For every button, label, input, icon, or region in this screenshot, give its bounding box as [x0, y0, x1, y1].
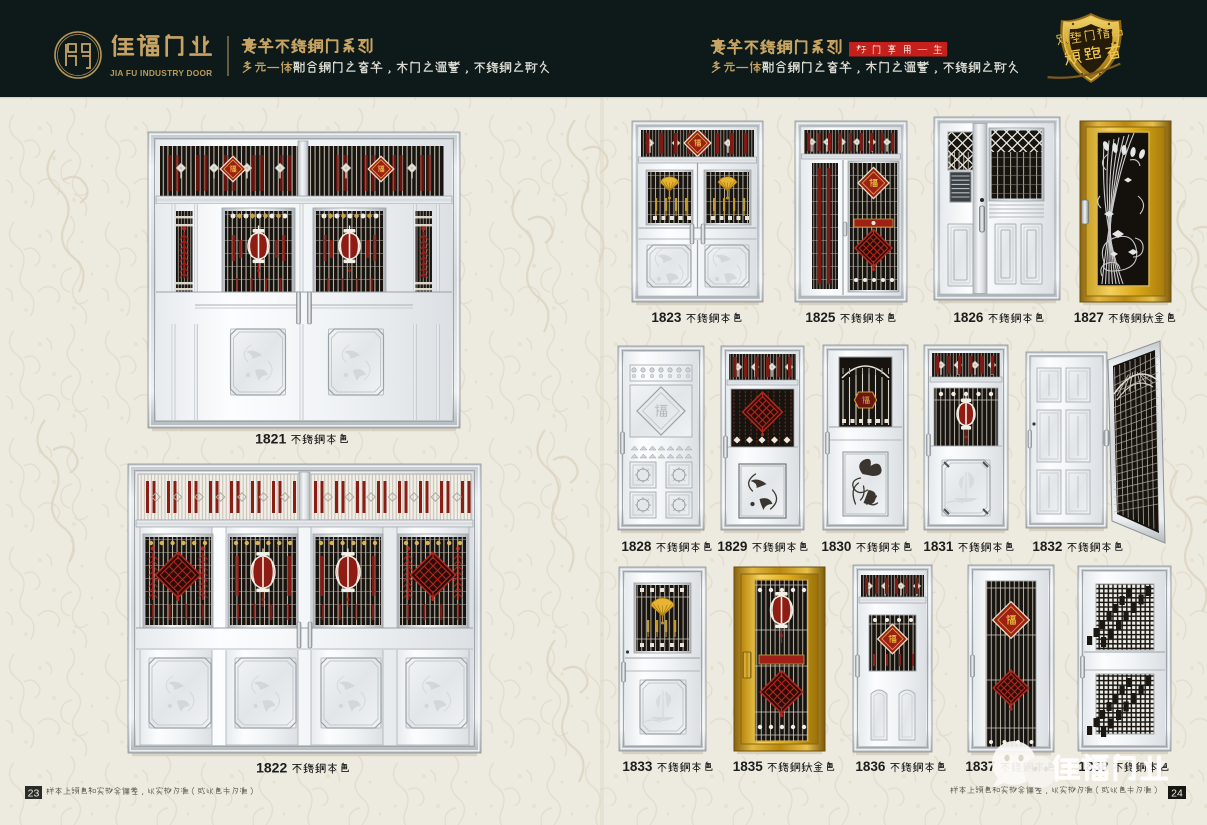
- svg-text:1829: 1829: [717, 539, 747, 554]
- svg-text:1825: 1825: [805, 310, 836, 325]
- svg-text:1837: 1837: [965, 759, 995, 774]
- svg-text:1835: 1835: [733, 759, 764, 774]
- svg-text:JIA FU INDUSTRY DOOR: JIA FU INDUSTRY DOOR: [110, 68, 212, 78]
- svg-text:1823: 1823: [651, 310, 682, 325]
- svg-text:24: 24: [1171, 788, 1183, 800]
- svg-text:1827: 1827: [1074, 310, 1104, 325]
- svg-text:23: 23: [28, 788, 40, 800]
- svg-text:1822: 1822: [256, 759, 287, 775]
- svg-text:1832: 1832: [1032, 539, 1062, 554]
- svg-text:1830: 1830: [821, 539, 851, 554]
- svg-text:1826: 1826: [953, 310, 984, 325]
- svg-text:1836: 1836: [855, 759, 886, 774]
- svg-text:1833: 1833: [622, 759, 653, 774]
- svg-text:1828: 1828: [621, 539, 652, 554]
- svg-text:1831: 1831: [923, 539, 954, 554]
- svg-text:1821: 1821: [255, 430, 286, 446]
